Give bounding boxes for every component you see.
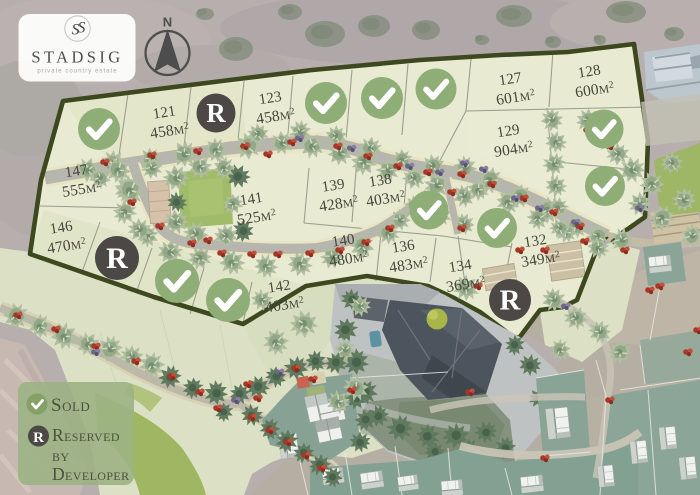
svg-text:R: R [106,242,128,275]
svg-text:by: by [52,445,69,465]
svg-text:R: R [500,285,522,317]
svg-text:R: R [206,98,226,128]
svg-text:R: R [33,430,44,446]
svg-text:N: N [163,15,172,30]
svg-text:S: S [78,19,86,36]
svg-text:Developer: Developer [52,464,130,484]
svg-text:Reserved: Reserved [52,425,120,445]
svg-text:STADSIG: STADSIG [31,48,123,67]
svg-text:Sold: Sold [51,395,90,416]
svg-text:private country estate: private country estate [37,68,117,75]
